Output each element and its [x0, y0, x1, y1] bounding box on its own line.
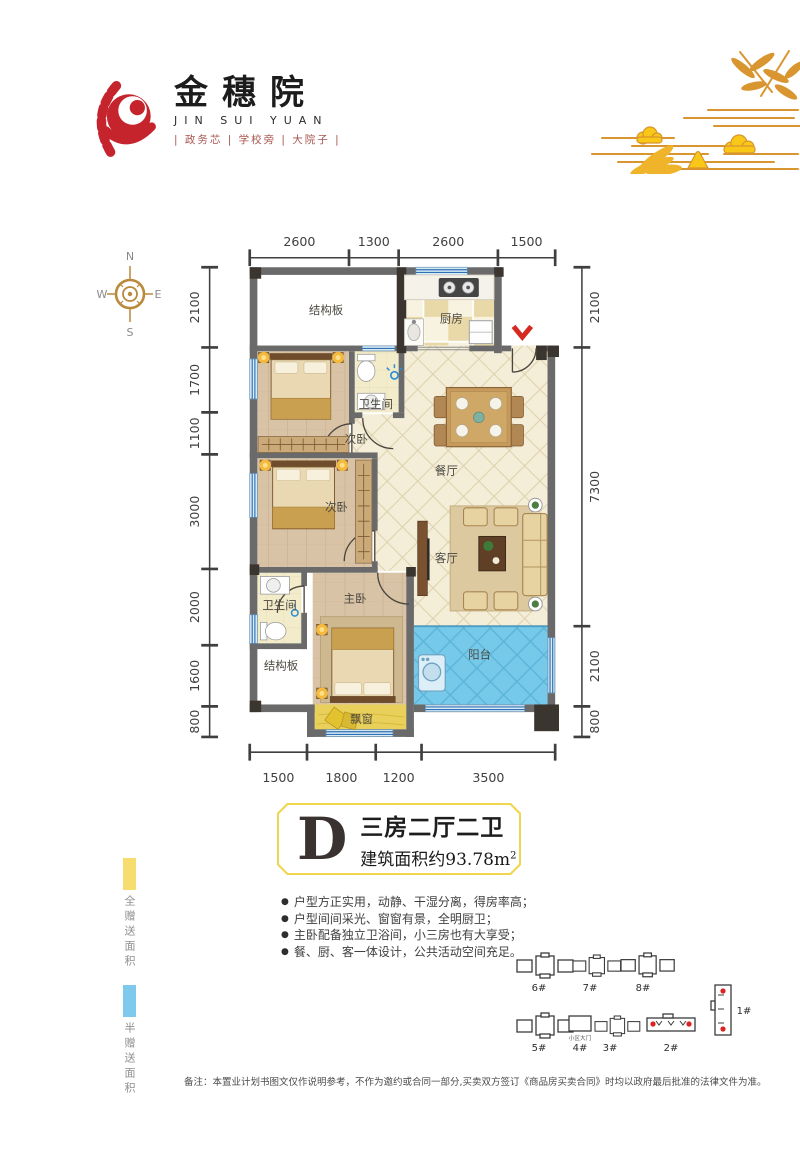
dim-left-2: 1100 [187, 417, 202, 449]
brand-logo: 金穗院 JIN SUI YUAN | 政务芯 | 学校旁 | 大院子 | [84, 74, 341, 166]
bullet-icon: ● [281, 911, 289, 928]
dim-bottom-2: 1200 [383, 770, 415, 785]
dim-top-3: 1500 [511, 234, 543, 249]
brand-tagline: | 政务芯 | 学校旁 | 大院子 | [174, 132, 341, 147]
dim-right-2: 2100 [587, 650, 602, 682]
dim-left-4: 2000 [187, 591, 202, 623]
room-label-kitchen: 厨房 [440, 312, 463, 326]
feature-item: ●户型间间采光、窗窗有景，全明厨卫； [281, 911, 551, 928]
flyer-page: { "brand": { "name": "金穗院", "name_en": "… [0, 0, 800, 1168]
room-label-master: 主卧 [344, 592, 367, 606]
room-label-bath1: 卫生间 [359, 397, 393, 411]
feature-item: ●户型方正实用，动静、干湿分离，得房率高； [281, 894, 551, 911]
building-7 [573, 955, 621, 976]
bullet-icon: ● [281, 944, 289, 961]
building-5 [517, 1013, 573, 1038]
compass-s: S [127, 326, 134, 338]
compass-rose: N S W E [94, 246, 166, 338]
dim-right-1: 7300 [587, 471, 602, 503]
building-8 [621, 953, 674, 977]
feature-item: ●主卧配备独立卫浴间，小三房也有大享受； [281, 927, 551, 944]
area-legend: 全赠送面积 半赠送面积 [118, 858, 140, 1097]
dim-left-6: 800 [187, 710, 202, 734]
building-label-4: 4# [573, 1043, 588, 1054]
room-label-bed-b: 次卧 [325, 500, 348, 514]
room-label-slab-top: 结构板 [309, 303, 344, 317]
room-label-bay-window: 飘窗 [350, 712, 373, 726]
dim-top-0: 2600 [283, 234, 315, 249]
gold-landscape-decoration [588, 50, 800, 174]
dim-bottom-3: 3500 [472, 770, 504, 785]
building-label-7: 7# [583, 983, 598, 994]
brand-name: 金穗院 [174, 74, 341, 113]
building-label-5: 5# [532, 1043, 547, 1054]
building-4-gate [569, 1016, 591, 1031]
dim-right-0: 2100 [587, 291, 602, 323]
floor-plan: 结构板 厨房 卫生间 次卧 次卧 餐厅 客厅 主卧 卫生间 结构板 阳台 飘窗 … [177, 210, 605, 798]
room-label-slab-bottom: 结构板 [264, 658, 299, 672]
unit-layout: 三房二厅二卫 [360, 808, 516, 842]
legend-label-half: 半赠送面积 [121, 1022, 137, 1097]
compass-e: E [155, 288, 162, 301]
compass-n: N [126, 250, 134, 263]
dim-left-0: 2100 [187, 291, 202, 323]
legend-label-full: 全赠送面积 [121, 895, 137, 970]
disclaimer-text: 备注：本置业计划书图文仅作说明参考，不作为邀约或合同一部分,买卖双方签订《商品房… [184, 1074, 784, 1088]
site-plan: 6# 7# 8# 5# 4# 3# 2# 1# 小区大门 [503, 943, 758, 1061]
entry-arrow-icon [515, 328, 530, 337]
gate-label: 小区大门 [569, 1034, 592, 1042]
room-label-dining: 餐厅 [435, 464, 458, 478]
building-label-6: 6# [532, 983, 547, 994]
compass-w: W [97, 288, 108, 301]
building-label-1: 1# [737, 1006, 752, 1017]
bullet-icon: ● [281, 927, 289, 944]
dim-left-3: 3000 [187, 496, 202, 528]
room-label-living: 客厅 [435, 551, 458, 565]
building-label-2: 2# [664, 1043, 679, 1054]
dim-right-3: 800 [587, 710, 602, 734]
room-label-balcony: 阳台 [468, 648, 491, 662]
unit-plaque: D 三房二厅二卫 建筑面积约93.78m2 [277, 803, 521, 875]
dim-bottom-0: 1500 [262, 770, 294, 785]
bamboo-leaves [729, 50, 800, 102]
building-label-3: 3# [603, 1043, 618, 1054]
unit-area: 建筑面积约93.78m2 [360, 845, 516, 870]
dim-top-2: 2600 [432, 234, 464, 249]
building-3 [595, 1016, 640, 1036]
legend-swatch-full [123, 858, 136, 890]
unit-letter: D [297, 810, 347, 868]
dim-left-5: 1600 [187, 660, 202, 692]
dim-bottom-1: 1800 [325, 770, 357, 785]
building-6 [517, 953, 573, 978]
room-label-bed-a: 次卧 [345, 432, 368, 446]
legend-swatch-half [123, 985, 136, 1017]
dim-left-1: 1700 [187, 364, 202, 396]
building-label-8: 8# [636, 983, 651, 994]
dim-top-1: 1300 [358, 234, 390, 249]
brand-name-en: JIN SUI YUAN [174, 114, 341, 127]
wheat-swirl-logo-icon [84, 74, 164, 166]
room-label-bath2: 卫生间 [262, 598, 296, 612]
bullet-icon: ● [281, 894, 289, 911]
